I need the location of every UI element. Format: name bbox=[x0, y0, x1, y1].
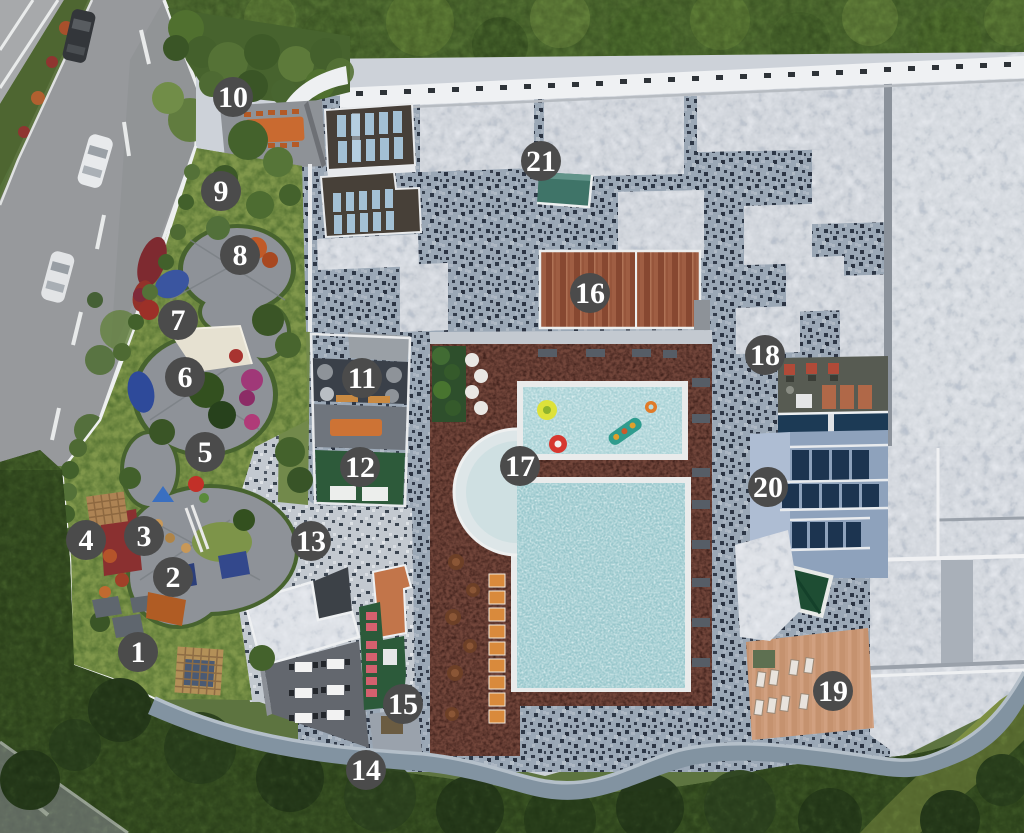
svg-text:7: 7 bbox=[171, 304, 186, 337]
svg-text:14: 14 bbox=[351, 754, 381, 787]
svg-text:17: 17 bbox=[505, 450, 535, 483]
svg-text:10: 10 bbox=[218, 81, 248, 114]
svg-text:16: 16 bbox=[575, 277, 605, 310]
svg-text:21: 21 bbox=[526, 145, 556, 178]
svg-text:9: 9 bbox=[214, 175, 229, 208]
svg-text:6: 6 bbox=[178, 361, 193, 394]
svg-text:5: 5 bbox=[198, 436, 213, 469]
svg-text:1: 1 bbox=[131, 636, 146, 669]
svg-text:2: 2 bbox=[166, 561, 181, 594]
svg-text:11: 11 bbox=[348, 362, 376, 395]
svg-text:4: 4 bbox=[79, 524, 94, 557]
svg-text:20: 20 bbox=[753, 471, 783, 504]
svg-text:15: 15 bbox=[388, 688, 418, 721]
svg-text:3: 3 bbox=[137, 520, 152, 553]
svg-text:19: 19 bbox=[818, 675, 848, 708]
svg-text:13: 13 bbox=[296, 525, 326, 558]
svg-text:12: 12 bbox=[345, 451, 375, 484]
svg-text:18: 18 bbox=[750, 339, 780, 372]
svg-text:8: 8 bbox=[233, 239, 248, 272]
